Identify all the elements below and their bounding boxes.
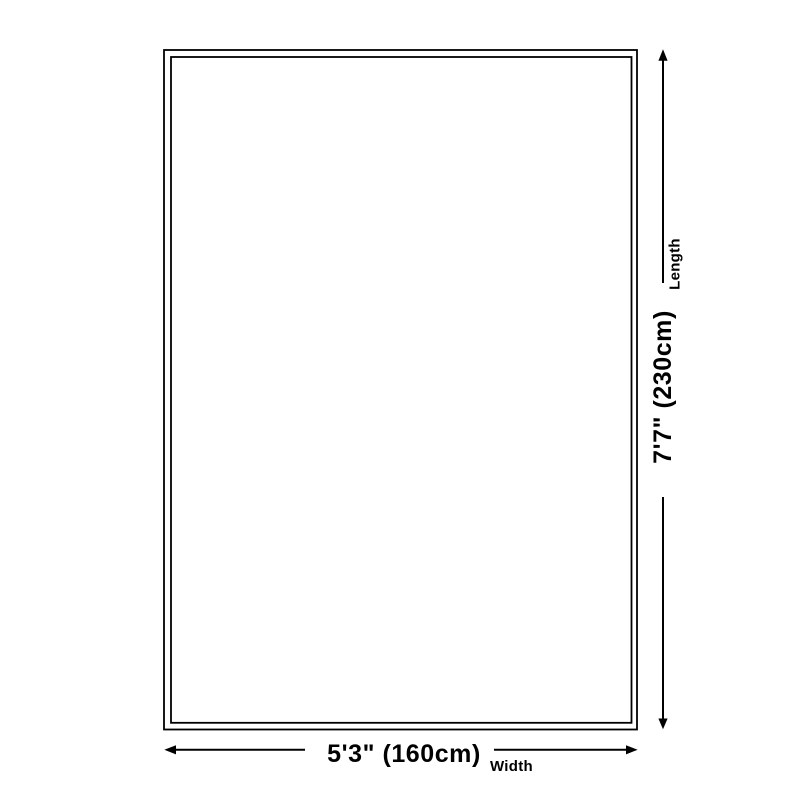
svg-text:Width: Width (490, 758, 533, 775)
svg-text:7'7" (230cm): 7'7" (230cm) (649, 310, 677, 464)
svg-text:5'3" (160cm): 5'3" (160cm) (327, 740, 481, 768)
svg-text:Length: Length (667, 238, 684, 290)
